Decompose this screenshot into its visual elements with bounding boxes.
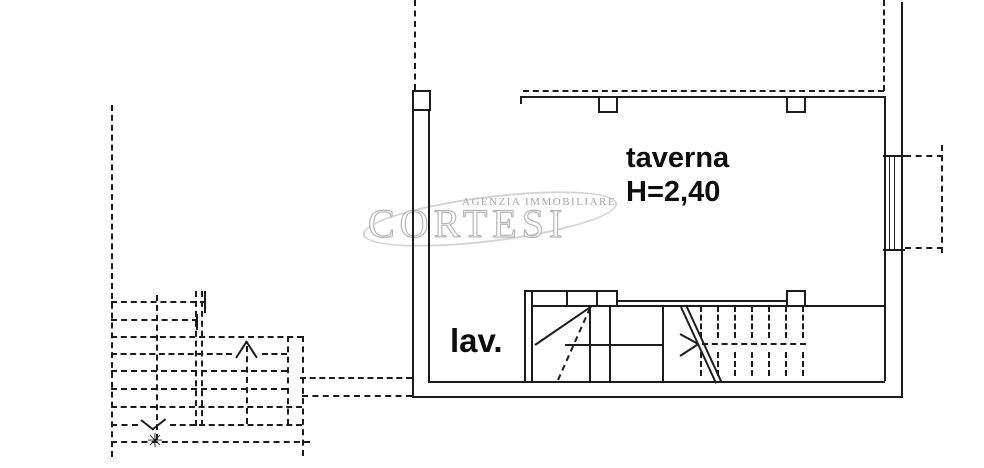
stair-direction-line [534, 305, 592, 346]
taverna-room-label: taverna H=2,40 [626, 141, 729, 209]
hidden-wall-edge-top-right [883, 0, 885, 91]
floor-plan-basement: AGENZIA IMMOBILIARE CORTESI [0, 0, 984, 468]
hidden-structure-line [111, 424, 138, 426]
wall-left-outer [412, 110, 414, 398]
stair-wall-left-inner [531, 290, 533, 381]
hidden-stair-step [785, 306, 787, 338]
hidden-structure-line [111, 336, 303, 338]
hidden-structure-line [111, 441, 310, 443]
stair-top-edge [524, 290, 617, 292]
stair-arrow-head [679, 343, 699, 357]
wall-top-end-tick [520, 96, 522, 104]
stair-wall-left-outer [524, 290, 526, 381]
hidden-structure-tick [204, 291, 206, 313]
pillar-stair [786, 290, 806, 307]
hidden-stair-step [700, 352, 702, 376]
wall-right-inner [884, 96, 886, 381]
stair-mid-line [565, 344, 664, 346]
stair-step-line [616, 290, 618, 306]
lav-name: lav. [450, 322, 503, 359]
wall-bottom-outer [412, 396, 903, 398]
hidden-stair-step [717, 352, 719, 376]
window-glazing-line [889, 156, 890, 250]
stair-step-line [662, 305, 664, 381]
hidden-structure-line [111, 370, 287, 372]
stair-step-line [596, 290, 598, 306]
hidden-structure-left-edge [111, 105, 113, 457]
pillar-top-left [412, 90, 431, 111]
wall-top [520, 96, 886, 98]
hidden-stair-step [785, 352, 787, 376]
hidden-stair-step [734, 352, 736, 376]
hidden-stair-step [768, 352, 770, 376]
wall-left-inner [428, 110, 430, 381]
hidden-wall-edge-top-left [414, 0, 416, 90]
lav-room-label: lav. [450, 324, 503, 357]
stair-landing-edge-upper [617, 300, 786, 302]
window-glazing-line [894, 156, 895, 250]
window-well-right-dashed [941, 145, 943, 253]
hidden-structure-line [201, 291, 203, 426]
taverna-ceiling-height: H=2,40 [626, 175, 729, 209]
hidden-stair-step [751, 306, 753, 338]
hidden-structure-line [111, 319, 198, 321]
hidden-structure-line [195, 291, 197, 426]
watermark-title: CORTESI [368, 200, 567, 247]
window-well-top-dashed [905, 155, 943, 157]
hidden-stair-step [717, 306, 719, 338]
hidden-structure-line [111, 406, 302, 408]
taverna-name: taverna [626, 141, 729, 175]
hidden-wall-connector [302, 395, 412, 397]
hidden-stair-step [700, 306, 702, 338]
window-well-bottom-dashed [905, 247, 943, 249]
hidden-structure-line [111, 388, 287, 390]
hidden-stair-step [802, 352, 804, 376]
hidden-wall-connector [300, 377, 412, 379]
stair-step-line [566, 290, 568, 306]
hidden-structure-line [262, 353, 287, 355]
hidden-stair-arrow-stem [246, 346, 248, 424]
hidden-arrow-head [152, 418, 166, 429]
wall-right-outer [901, 2, 903, 398]
stair-landing-edge-lower [531, 305, 884, 307]
hidden-stair-step [734, 306, 736, 338]
wall-bottom-inner [428, 381, 885, 383]
stair-break-cut-line [680, 307, 717, 384]
hidden-stair-mid-line [702, 343, 806, 345]
pillar-top-b [786, 96, 806, 113]
hidden-structure-line [156, 295, 158, 440]
stair-step-line [589, 305, 591, 381]
hidden-structure-line [287, 336, 289, 425]
hidden-stair-step [802, 306, 804, 338]
star-symbol: ✳ [147, 432, 163, 451]
hidden-stair-step [751, 352, 753, 376]
hidden-wall-edge-top [523, 90, 884, 92]
pillar-top-a [598, 96, 618, 113]
hidden-structure-line [111, 353, 232, 355]
stair-step-line [609, 305, 611, 381]
hidden-structure-line [170, 424, 302, 426]
hidden-structure-line [111, 301, 206, 303]
hidden-stair-step [768, 306, 770, 338]
